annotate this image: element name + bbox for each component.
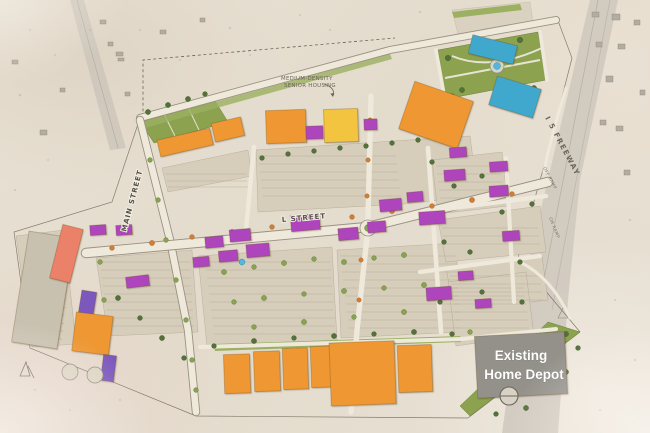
building-major-anchor-south: [329, 341, 396, 406]
site-plan-map: MEDIUM-DENSITY SENIOR HOUSING MAIN STREE…: [0, 0, 650, 433]
building-anchor-southwest: [72, 312, 113, 355]
main-street-label: MAIN STREET: [120, 169, 144, 233]
building-anchor-north-b: [323, 108, 358, 142]
promenade-north: [368, 96, 371, 219]
home-depot-label-line1: Existing: [495, 348, 548, 363]
site-plan-svg: MEDIUM-DENSITY SENIOR HOUSING MAIN STREE…: [0, 0, 650, 433]
retention-circle-b: [87, 367, 103, 383]
building-shops-west-c: [125, 275, 149, 289]
plaza-fountain-icon: [239, 259, 245, 265]
south-anchor-row: [223, 339, 433, 409]
home-depot-label-line2: Home Depot: [484, 367, 564, 382]
building-anchor-north-a: [265, 109, 306, 143]
fountain-icon: [494, 63, 501, 70]
senior-housing-label-line1: MEDIUM-DENSITY: [281, 76, 333, 82]
building-shops-north: [306, 126, 323, 140]
north-arrow-icon: [20, 362, 34, 378]
building-shops-west-a: [90, 224, 107, 235]
building-shops-north2: [364, 119, 377, 130]
retention-circle-a: [62, 364, 78, 380]
home-depot-building: [474, 332, 567, 399]
